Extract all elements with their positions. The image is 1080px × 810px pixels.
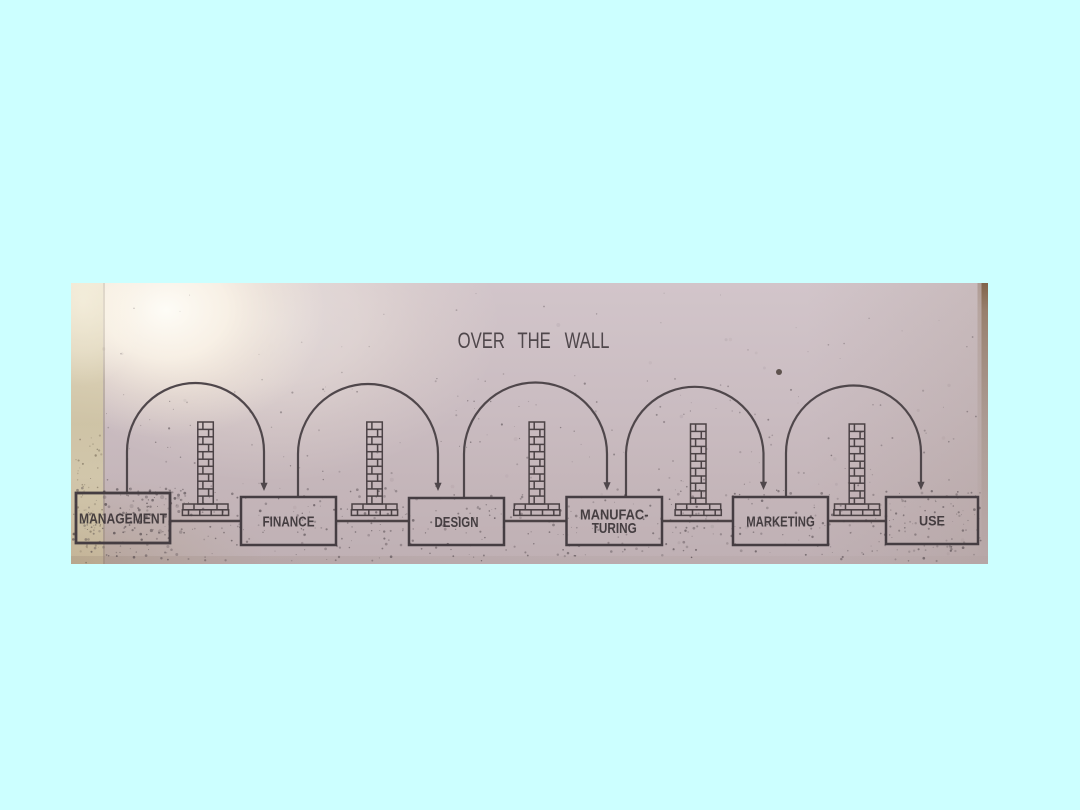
svg-text:THE: THE	[517, 329, 550, 354]
svg-text:WALL: WALL	[564, 329, 609, 354]
svg-text:OVER: OVER	[457, 329, 504, 354]
svg-text:FINANCE: FINANCE	[262, 513, 314, 530]
svg-text:DESIGN: DESIGN	[434, 513, 478, 530]
svg-text:USE: USE	[919, 512, 945, 528]
svg-text:TURING: TURING	[591, 520, 636, 537]
svg-text:MARKETING: MARKETING	[746, 513, 815, 530]
